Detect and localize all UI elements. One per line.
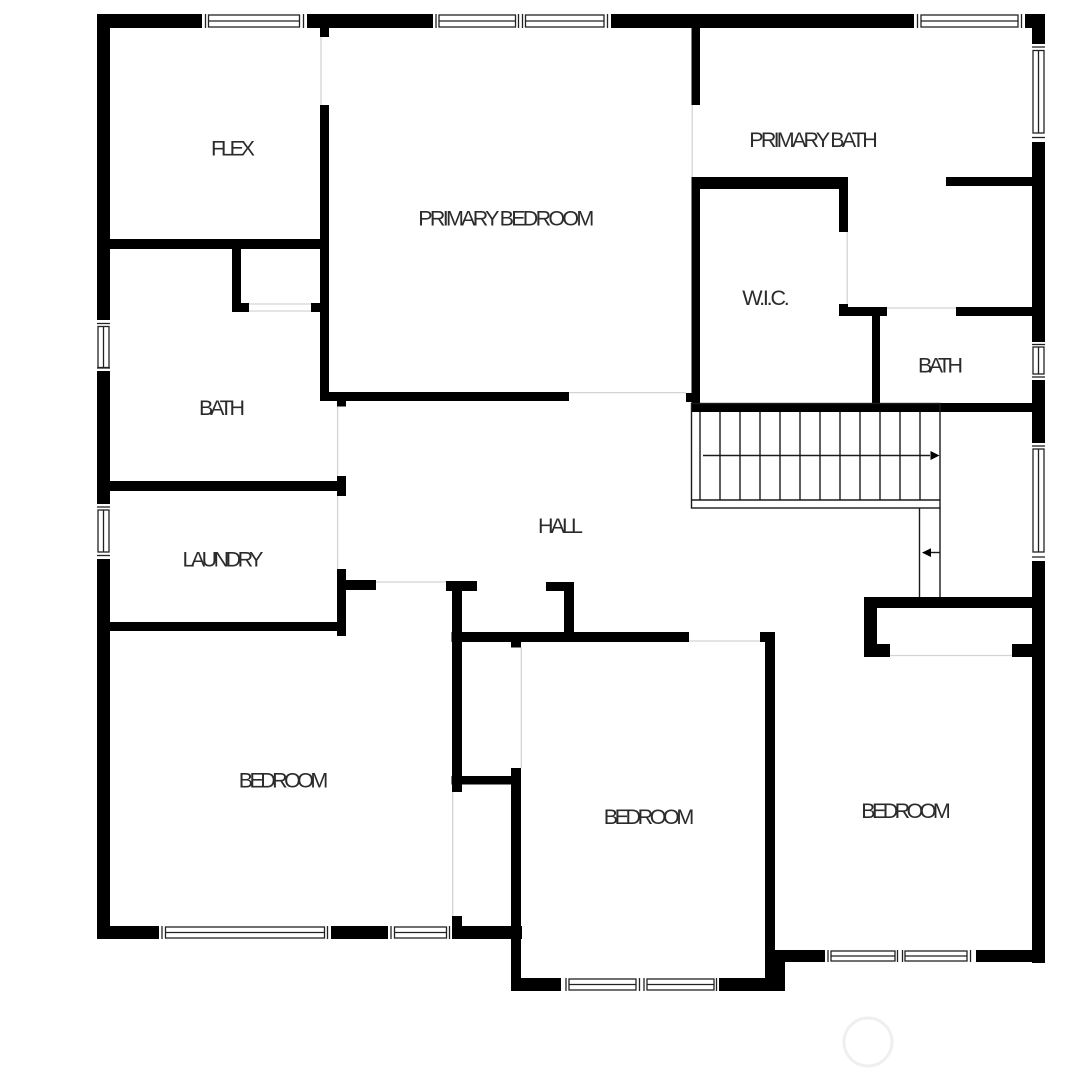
svg-text:PRIMARY BEDROOM: PRIMARY BEDROOM (418, 207, 594, 231)
svg-text:W.I.C.: W.I.C. (742, 286, 790, 310)
svg-text:BEDROOM: BEDROOM (861, 799, 951, 823)
svg-text:BEDROOM: BEDROOM (604, 805, 695, 829)
svg-text:BEDROOM: BEDROOM (239, 769, 329, 793)
svg-text:BATH: BATH (918, 354, 963, 378)
svg-text:FLEX: FLEX (211, 137, 255, 161)
svg-text:BATH: BATH (199, 396, 245, 420)
svg-text:HALL: HALL (538, 514, 583, 538)
svg-text:LAUNDRY: LAUNDRY (183, 548, 264, 572)
svg-text:PRIMARY BATH: PRIMARY BATH (749, 128, 878, 152)
